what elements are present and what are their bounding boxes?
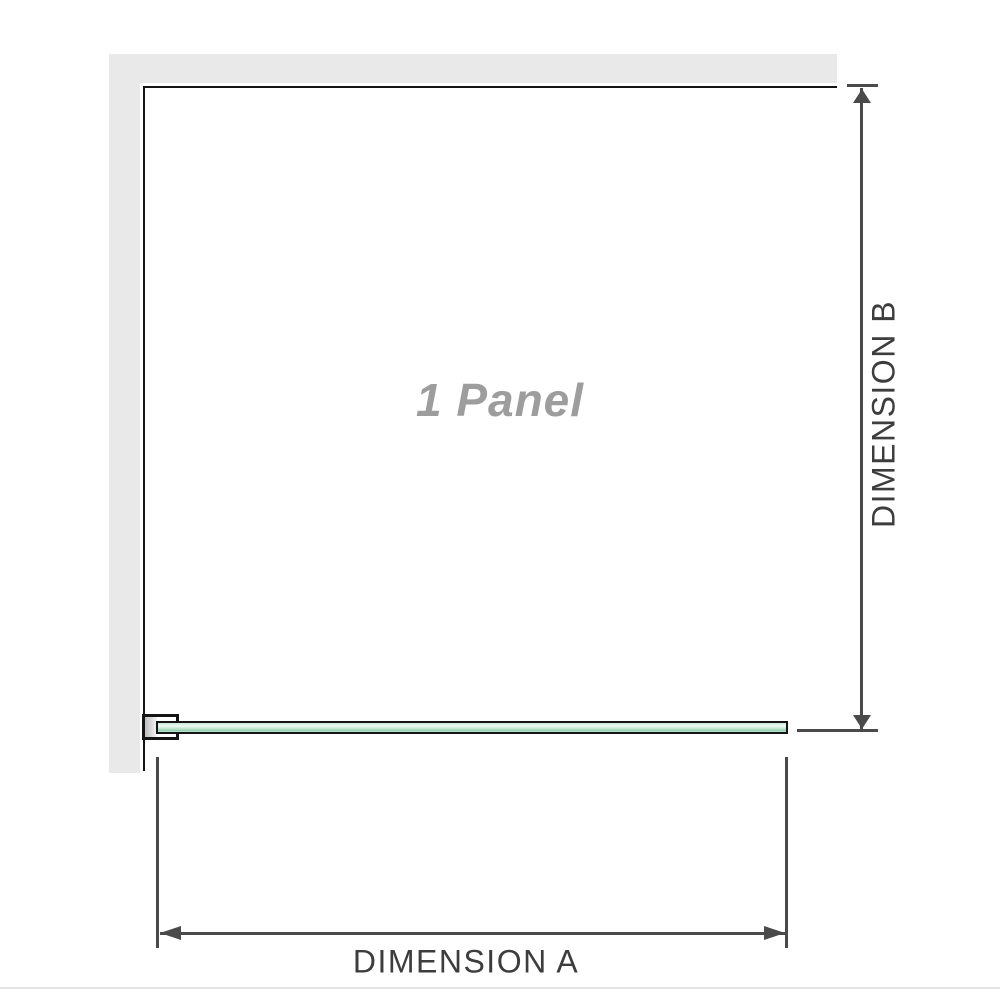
dimension-diagram: 1 Panel DIMENSION B DIMENSION A — [0, 0, 1000, 1000]
dimension-a-extension-right — [785, 757, 788, 948]
glass-panel — [156, 721, 788, 734]
dimension-a-line — [160, 932, 785, 935]
dimension-b-top-tick — [847, 84, 878, 87]
dimension-a-arrow-left-icon — [160, 926, 181, 940]
panel-count-label: 1 Panel — [416, 373, 584, 427]
wall-edge-top — [143, 86, 837, 88]
dimension-a-arrow-right-icon — [764, 926, 785, 940]
bottom-divider — [0, 987, 1000, 989]
dimension-b-arrow-down-icon — [853, 715, 871, 729]
wall-top-bar — [109, 54, 837, 83]
dimension-a-label: DIMENSION A — [353, 944, 579, 981]
wall-left-bar — [109, 54, 140, 773]
dimension-b-line — [860, 88, 863, 731]
dimension-a-extension-left — [156, 757, 159, 948]
dimension-b-arrow-up-icon — [853, 89, 871, 103]
dimension-b-label: DIMENSION B — [866, 300, 903, 528]
wall-edge-left — [143, 86, 145, 771]
dimension-b-bottom-tick — [797, 729, 878, 732]
